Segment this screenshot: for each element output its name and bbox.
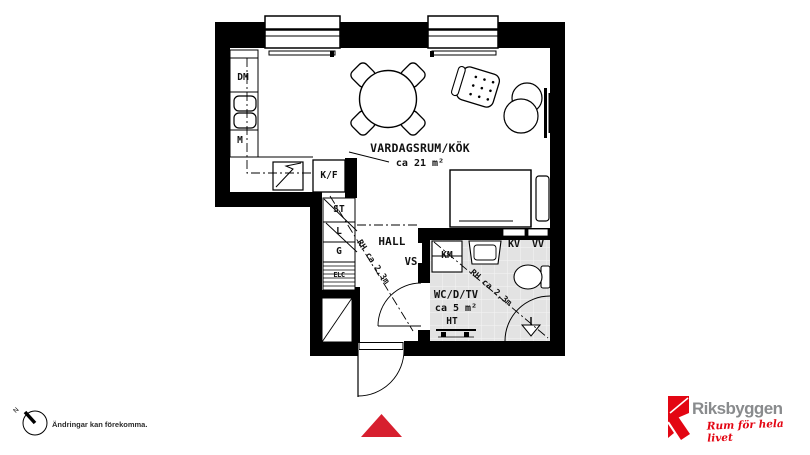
vs-label: VS: [399, 257, 423, 268]
ht-label: HT: [440, 317, 464, 327]
fridge-freezer-label: K/F: [313, 171, 345, 181]
window-1: [265, 16, 340, 57]
bathroom-area: ca 5 m²: [418, 304, 494, 314]
vv-label: VV: [526, 240, 550, 250]
wall-kitchen-bottom: [215, 192, 310, 207]
tv-wall-mount: [544, 88, 551, 138]
stove-symbol: [276, 163, 301, 187]
wall-bath-left-b: [422, 243, 430, 263]
bathroom-label: WC/D/TV: [418, 290, 494, 301]
compass: [23, 411, 47, 435]
disclaimer-text: Ändringar kan förekomma.: [52, 420, 147, 429]
kv-label: KV: [502, 240, 526, 250]
sink-bowl-1: [234, 96, 256, 111]
side-tables: [504, 83, 542, 133]
shaft-vv: [528, 229, 548, 236]
wall-bottom-left: [310, 341, 358, 356]
wall-lower-left: [310, 192, 322, 356]
wall-elc-separator: [318, 290, 360, 298]
micro-label: M: [228, 136, 252, 146]
living-room-area: ca 21 m²: [340, 159, 500, 169]
floorplan-drawing: [0, 0, 810, 455]
dining-table: [360, 71, 417, 128]
wall-right: [550, 22, 565, 356]
toilet-bowl: [514, 265, 542, 289]
logo-tagline: Rum för hela livet: [707, 417, 800, 444]
entrance-door: [358, 343, 404, 398]
wall-top-2: [340, 22, 428, 48]
wall-bottom-right: [404, 341, 565, 356]
hall-label: HALL: [362, 236, 422, 247]
bathroom-door: [378, 283, 421, 326]
shaft-kv: [503, 229, 525, 236]
wall-bath-left-d: [418, 330, 430, 341]
entrance-marker-triangle: [361, 414, 402, 437]
logo-wordmark: Riksbyggen: [692, 399, 782, 419]
wall-left: [215, 22, 230, 207]
elc-label: ELC: [323, 272, 355, 279]
dining-set: [349, 61, 427, 137]
closet-st-label: ST: [323, 205, 355, 215]
living-room-label: VARDAGSRUM/KÖK: [340, 143, 500, 155]
window-2: [428, 16, 498, 57]
dishwasher-label: DM: [228, 73, 258, 83]
hall-closets: [322, 198, 357, 342]
sink-bowl-2: [234, 113, 256, 128]
floorplan-page: VARDAGSRUM/KÖK ca 21 m² HALL WC/D/TV ca …: [0, 0, 810, 455]
headboard: [536, 176, 549, 221]
closet-g-label: G: [323, 247, 355, 257]
armchair: [450, 64, 501, 109]
riksbyggen-logo: Riksbyggen Rum för hela livet: [664, 393, 799, 443]
bed: [450, 170, 549, 227]
